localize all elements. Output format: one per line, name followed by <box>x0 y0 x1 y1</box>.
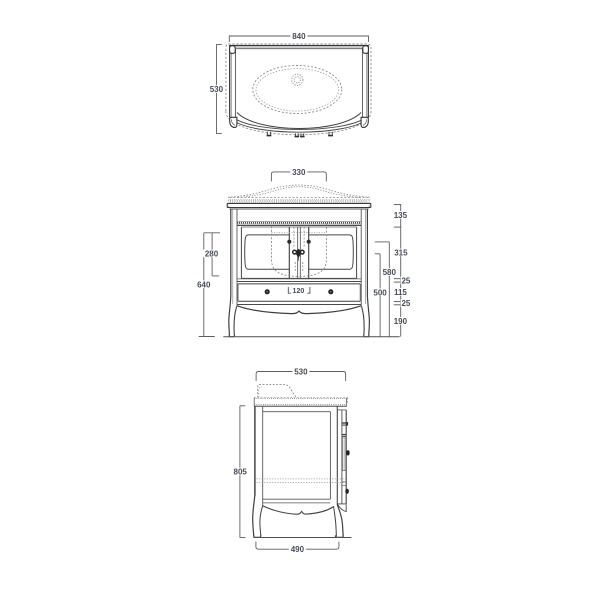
svg-text:280: 280 <box>205 249 219 258</box>
svg-text:120: 120 <box>293 288 305 295</box>
svg-text:190: 190 <box>394 317 408 326</box>
svg-text:135: 135 <box>394 211 408 220</box>
svg-text:640: 640 <box>197 280 211 289</box>
svg-text:25: 25 <box>401 276 410 285</box>
svg-text:315: 315 <box>394 248 408 257</box>
svg-text:115: 115 <box>394 288 407 297</box>
svg-text:25: 25 <box>401 299 410 308</box>
svg-text:500: 500 <box>373 288 387 297</box>
svg-text:580: 580 <box>383 268 397 277</box>
svg-text:530: 530 <box>294 367 308 376</box>
svg-text:530: 530 <box>210 85 224 94</box>
svg-text:840: 840 <box>292 32 306 41</box>
svg-text:490: 490 <box>291 545 305 554</box>
svg-text:330: 330 <box>292 168 306 177</box>
svg-text:805: 805 <box>234 468 248 477</box>
